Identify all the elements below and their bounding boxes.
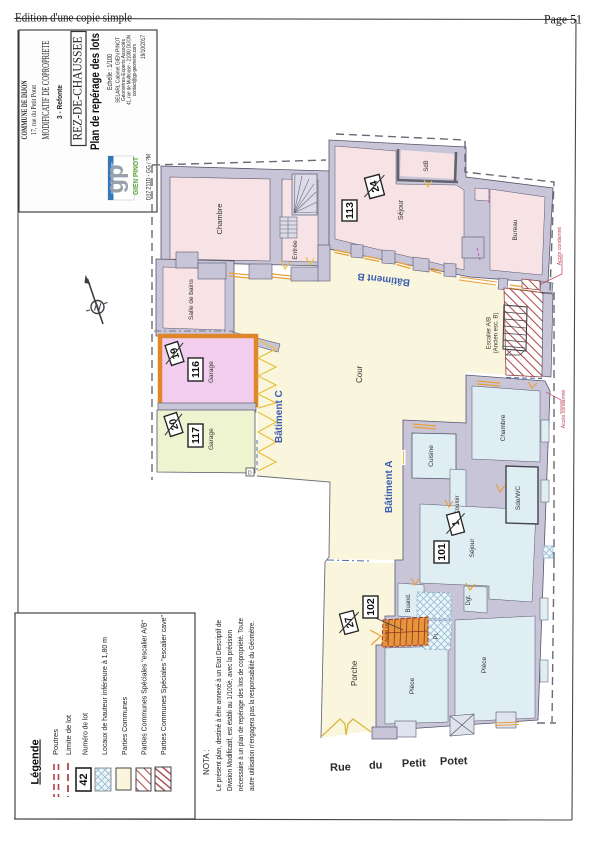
svg-text:Potet: Potet: [440, 755, 468, 768]
svg-text:Chambre: Chambre: [500, 414, 507, 441]
svg-text:Salle de bains: Salle de bains: [188, 278, 195, 320]
svg-text:3 - Refonte: 3 - Refonte: [55, 85, 64, 119]
svg-text:Pl.: Pl.: [434, 632, 440, 639]
svg-text:17, rue du Petit Potet: 17, rue du Petit Potet: [29, 84, 38, 135]
svg-text:Entrée: Entrée: [292, 240, 299, 260]
svg-text:Dgt.: Dgt.: [466, 594, 472, 605]
svg-text:REZ-DE-CHAUSSEE: REZ-DE-CHAUSSEE: [71, 36, 85, 140]
svg-text:Chambre: Chambre: [215, 204, 224, 235]
svg-text:du: du: [369, 759, 383, 771]
svg-text:Bâtiment A: Bâtiment A: [384, 461, 395, 513]
svg-text:Bâtiment C: Bâtiment C: [274, 390, 285, 443]
svg-text:Division Modificatif, est étab: Division Modificatif, est établi au 1/10…: [225, 630, 234, 791]
svg-text:D: D: [248, 471, 252, 477]
svg-text:117: 117: [190, 427, 202, 444]
svg-text:Séjour: Séjour: [469, 538, 476, 558]
svg-text:116: 116: [190, 361, 202, 378]
svg-text:Accès 1er: Accès 1er: [384, 621, 389, 642]
svg-text:Garage: Garage: [208, 361, 215, 383]
svg-text:Cour: Cour: [355, 365, 364, 383]
svg-text:NOTA :: NOTA :: [202, 749, 211, 775]
svg-text:GIEN PINOT: GIEN PINOT: [133, 156, 140, 195]
svg-text:Plan de repérage des lots: Plan de repérage des lots: [88, 33, 102, 150]
svg-text:Accès condamné: Accès condamné: [561, 390, 567, 429]
svg-text:Poutres: Poutres: [53, 728, 60, 755]
svg-text:Pièce: Pièce: [409, 677, 416, 694]
svg-text:Echelle : 1/100: Echelle : 1/100: [107, 54, 114, 90]
svg-text:gp: gp: [102, 164, 129, 193]
svg-text:Cuisine: Cuisine: [428, 445, 435, 467]
svg-text:113: 113: [344, 202, 356, 219]
svg-text:Sde/WC: Sde/WC: [515, 486, 522, 511]
svg-text:Parties Communes Spéciales "es: Parties Communes Spéciales "escalier cav…: [161, 614, 168, 755]
svg-text:MODIFICATIF DE COPROPRIETE: MODIFICATIF DE COPROPRIETE: [40, 40, 52, 139]
svg-text:Numéro de lot: Numéro de lot: [83, 713, 90, 755]
svg-text:Escalier A/B: Escalier A/B: [487, 317, 493, 349]
svg-text:102: 102: [365, 598, 377, 616]
svg-text:Le présent plan, destiné à êtr: Le présent plan, destiné à être annexé à…: [214, 620, 223, 791]
svg-text:Locaux de hauteur inférieure à: Locaux de hauteur inférieure à 1,80 m: [102, 637, 109, 755]
svg-text:Page 51: Page 51: [544, 13, 582, 27]
svg-text:19/10/2017: 19/10/2017: [141, 34, 147, 59]
svg-text:(Ancien esc. B): (Ancien esc. B): [494, 313, 500, 354]
svg-text:101: 101: [436, 543, 448, 561]
svg-text:Petit: Petit: [402, 757, 426, 770]
svg-text:Parties Communes: Parties Communes: [122, 697, 129, 755]
svg-text:Buand.: Buand.: [406, 593, 412, 612]
svg-text:contact@gp-geometre.com: contact@gp-geometre.com: [132, 44, 138, 96]
svg-text:Limite de lot: Limite de lot: [66, 715, 73, 755]
svg-text:Séjour: Séjour: [398, 199, 405, 220]
svg-text:Bureau: Bureau: [512, 219, 519, 240]
svg-text:Légende: Légende: [30, 739, 42, 784]
svg-text:42: 42: [78, 773, 90, 785]
svg-text:Parties Communes Spéciales "es: Parties Communes Spéciales "escalier A/B…: [142, 619, 149, 755]
svg-text:autre utilisation n'engagera p: autre utilisation n'engagera pas la resp…: [247, 621, 256, 791]
svg-text:Edition d'une copie simple: Edition d'une copie simple: [15, 10, 132, 25]
svg-text:COMMUNE DE DIJON: COMMUNE DE DIJON: [20, 80, 29, 139]
svg-text:nécessaire à un plan de repéra: nécessaire à un plan de repérage des lot…: [236, 618, 245, 791]
svg-text:Porche: Porche: [350, 660, 359, 686]
svg-text:SdB: SdB: [424, 160, 430, 171]
svg-text:Garage: Garage: [208, 428, 215, 450]
svg-text:Rue: Rue: [330, 761, 351, 774]
svg-text:Pièce: Pièce: [481, 656, 488, 673]
